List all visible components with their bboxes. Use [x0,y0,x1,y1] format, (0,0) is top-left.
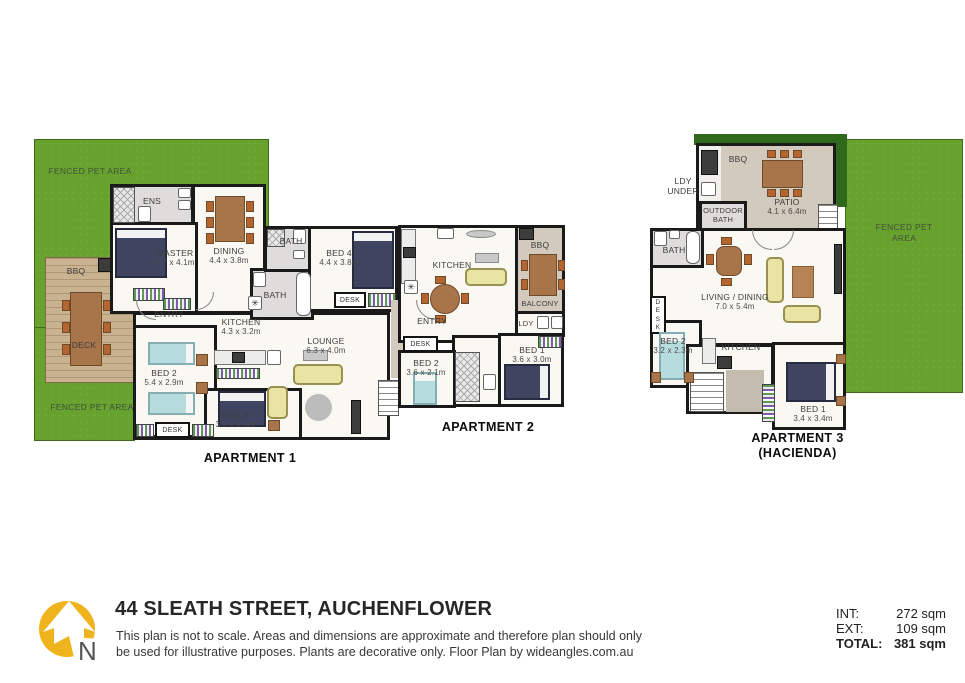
fenced-pet-area-label-apt3: FENCED PET AREA [864,222,944,244]
nightstand-icon [684,372,694,383]
bbq-icon [701,150,718,175]
patio-table-icon [762,160,803,188]
sofa-icon [783,305,821,323]
master-label: MASTER 3.7 x 4.1m [148,248,202,268]
plant-shelf-icon [216,368,260,379]
rug-icon [305,394,332,421]
sink-icon [293,250,305,259]
stairs-icon [818,204,838,230]
bbq-icon [519,228,534,240]
lounge-label: LOUNGE 6.3 x 4.0m [296,336,356,356]
chair-icon [793,150,802,158]
chair-icon [246,233,254,244]
chair-icon [103,322,111,333]
shower-icon [113,187,135,223]
bath-top-label: BATH [272,236,310,246]
bed-icon-apt3-bed1 [786,362,836,402]
svg-text:N: N [78,636,97,666]
floor-plan-page: FENCED PET AREA FENCED PET AREA FENCED P… [0,0,965,683]
chair-icon [706,254,714,265]
chair-icon [521,260,528,271]
chair-icon [744,254,752,265]
desk-icon-bed2: DESK [155,422,190,438]
bed2-label-apt3: BED 2 3.2 x 2.3m [646,336,700,356]
dining-table-icon [215,196,245,242]
apartment3-label: APARTMENT 3 [740,431,855,445]
ext-value: 109 sqm [870,621,946,636]
wardrobe-icon [762,384,775,422]
ldy-label-apt2: LDY [514,319,538,328]
disclaimer-line1: This plan is not to scale. Areas and dim… [116,629,676,643]
deck-table-icon [70,292,102,366]
living-dining-label: LIVING / DINING 7.0 x 5.4m [700,292,770,312]
bed-icon-bed2b [148,392,195,415]
ceiling-fan-icon [466,230,496,238]
nightstand-icon [836,354,846,364]
sofa-icon [465,268,507,286]
chair-icon [558,260,565,271]
washing-machine-icon: ✳ [404,280,418,294]
stairs-icon [378,380,399,416]
total-value: 381 sqm [870,636,946,651]
north-compass-icon: N [36,596,106,666]
chair-icon [793,189,802,197]
armchair-icon [267,386,288,419]
sofa-icon [293,364,343,385]
address-title: 44 SLEATH STREET, AUCHENFLOWER [115,598,655,621]
bed-icon-bed2a [148,342,195,365]
bed2-label-apt1: BED 2 5.4 x 2.9m [136,368,192,388]
bed2-label-apt2: BED 2 3.6 x 2.1m [400,358,452,378]
nightstand-icon [196,382,208,394]
bed1-label-apt3: BED 1 3.4 x 3.4m [788,404,838,424]
fenced-pet-area-label-top: FENCED PET AREA [48,166,132,177]
fridge-icon [267,350,281,365]
chair-icon [521,279,528,290]
sink-icon [669,230,680,239]
nightstand-icon [651,372,661,383]
outdoor-bath-label: OUTDOOR BATH [700,206,746,224]
washer-icon [551,316,563,329]
stove-icon [717,356,732,369]
chair-icon [246,217,254,228]
bed-icon-apt2-bed1 [504,364,550,400]
bed1-label-apt2: BED 1 3.6 x 3.0m [506,345,558,365]
desk-icon-apt3: DESK [650,296,666,334]
nightstand-icon [268,420,280,431]
toilet-icon [138,206,151,222]
sink-icon [178,200,191,210]
stairs-icon [690,372,724,412]
dining-table-icon [716,246,742,276]
chair-icon [206,201,214,212]
chair-icon [767,189,776,197]
apartment2-label: APARTMENT 2 [430,420,546,434]
sink-icon [178,188,191,198]
entry-label-apt1: ENTRY [146,309,192,319]
chair-icon [558,279,565,290]
stairwell-icon [455,352,480,402]
disclaimer-line2: be used for illustrative purposes. Plant… [116,645,676,659]
patio-label: PATIO 4.1 x 6.4m [758,197,816,217]
grass-apt3 [846,140,962,392]
chair-icon [767,150,776,158]
chair-icon [721,237,732,245]
deck-label: DECK [56,340,112,350]
coffee-table-icon [792,266,814,298]
tv-unit-icon [834,244,842,294]
chair-icon [246,201,254,212]
chair-icon [721,278,732,286]
chair-icon [206,217,214,228]
int-value: 272 sqm [870,606,946,621]
bbq-label-apt2: BBQ [525,240,555,250]
desk-icon-apt2: DESK [403,336,438,352]
wideangles-logo: N [36,596,106,666]
bbq-label-apt3: BBQ [722,154,754,164]
chair-icon [461,293,469,304]
toilet-icon [483,374,496,390]
apartment1-label: APARTMENT 1 [192,451,308,465]
ldy-under-label: LDY UNDER [660,176,706,196]
stove-icon [403,247,416,258]
fenced-pet-area-label-bottom: FENCED PET AREA [50,402,134,413]
kitchen-label-apt3: KITCHEN [714,342,768,352]
chair-icon [780,189,789,197]
tv-unit-icon [351,400,361,434]
stair-landing [726,370,764,412]
chair-icon [206,233,214,244]
toilet-icon [253,272,266,287]
balcony-table-icon [529,254,557,296]
bath-label-apt3: BATH [654,245,694,255]
chair-icon [62,300,70,311]
chair-icon [780,150,789,158]
wardrobe-icon [136,424,154,437]
nightstand-icon [196,354,208,366]
balcony-label: BALCONY [517,299,563,308]
kitchen-label-apt2: KITCHEN [424,260,480,270]
dining-label: DINING 4.4 x 3.8m [200,246,258,266]
toilet-icon [654,231,667,246]
chair-icon [435,276,446,284]
bed3-label: BED 3 3.5 x 3.5m [208,410,262,430]
sink-icon [437,228,454,239]
apartment3-sublabel: (HACIENDA) [740,446,855,460]
entry-label-apt2: ENTRY [410,316,454,326]
kitchen-label-apt1: KITCHEN 4.3 x 3.2m [210,317,272,337]
bath-bottom-label: BATH [256,290,294,300]
desk-icon-bed4: DESK [334,292,366,308]
stove-icon [232,352,245,363]
bed4-label: BED 4 4.4 x 3.8m [312,248,366,268]
bbq-label-apt1: BBQ [58,266,94,276]
bathtub-icon [296,272,311,316]
chair-icon [62,322,70,333]
ens-label: ENS [134,196,170,206]
washer-icon [537,316,549,329]
